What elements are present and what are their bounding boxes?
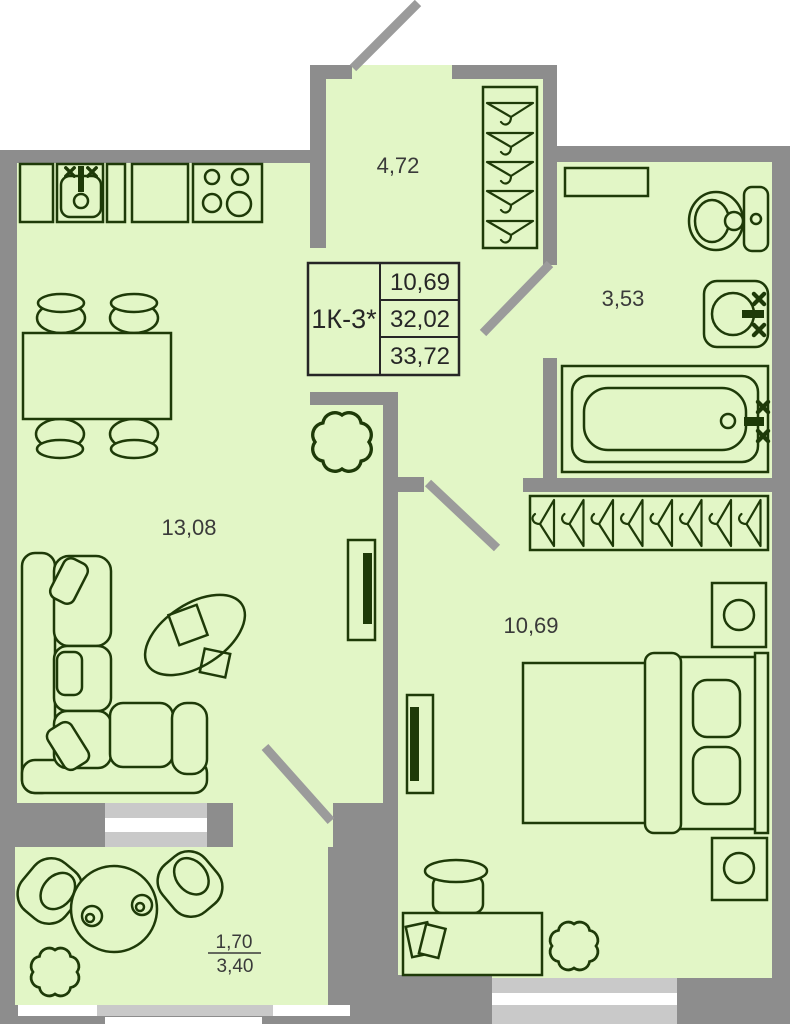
wall [333, 803, 398, 847]
wall [677, 978, 772, 1024]
wall [328, 847, 398, 1024]
window-living [105, 803, 207, 847]
desk-icon [403, 913, 542, 975]
balcony-area-full-label: 3,40 [217, 956, 254, 977]
unit-living-area: 10,69 [390, 269, 450, 296]
hallway-area-label: 4,72 [377, 153, 420, 178]
wall [523, 478, 790, 492]
unit-total-area: 33,72 [390, 343, 450, 370]
window-bedroom [492, 978, 677, 1024]
desk-chair-icon [425, 860, 487, 913]
wall [543, 65, 557, 265]
wall [557, 146, 790, 162]
wall [310, 65, 326, 248]
window-balcony-glazing [0, 1005, 352, 1024]
bathroom-area-label: 3,53 [602, 286, 645, 311]
floor-plan: 1К-3* 10,69 32,02 33,72 4,72 3,53 13,08 … [0, 0, 790, 1024]
dining-chair-icon [37, 294, 85, 333]
book-icon [406, 922, 446, 958]
dining-table-icon [23, 333, 171, 419]
wall [452, 65, 557, 79]
unit-code-label: 1К-3* [311, 304, 377, 334]
dining-chair-icon [110, 294, 158, 333]
pillow-icon [693, 680, 740, 737]
living-area-label: 13,08 [161, 515, 216, 540]
wall [398, 477, 424, 492]
wall [17, 803, 105, 847]
balcony-area-reduced-label: 1,70 [216, 932, 253, 953]
wall [0, 847, 15, 1012]
unit-apartment-area: 32,02 [390, 306, 450, 333]
bedroom-area-label: 10,69 [503, 613, 558, 638]
wall [310, 392, 398, 405]
wall [772, 146, 790, 1024]
dining-chair-icon [36, 419, 84, 458]
info-box: 1К-3* 10,69 32,02 33,72 [308, 263, 459, 375]
dining-chair-icon [110, 419, 158, 458]
wall [543, 358, 557, 480]
pillow-icon [693, 747, 740, 804]
wall [207, 803, 233, 847]
wall [0, 150, 310, 163]
wall [398, 975, 492, 1024]
door-swing-entry [353, 3, 418, 68]
wall [0, 150, 17, 847]
